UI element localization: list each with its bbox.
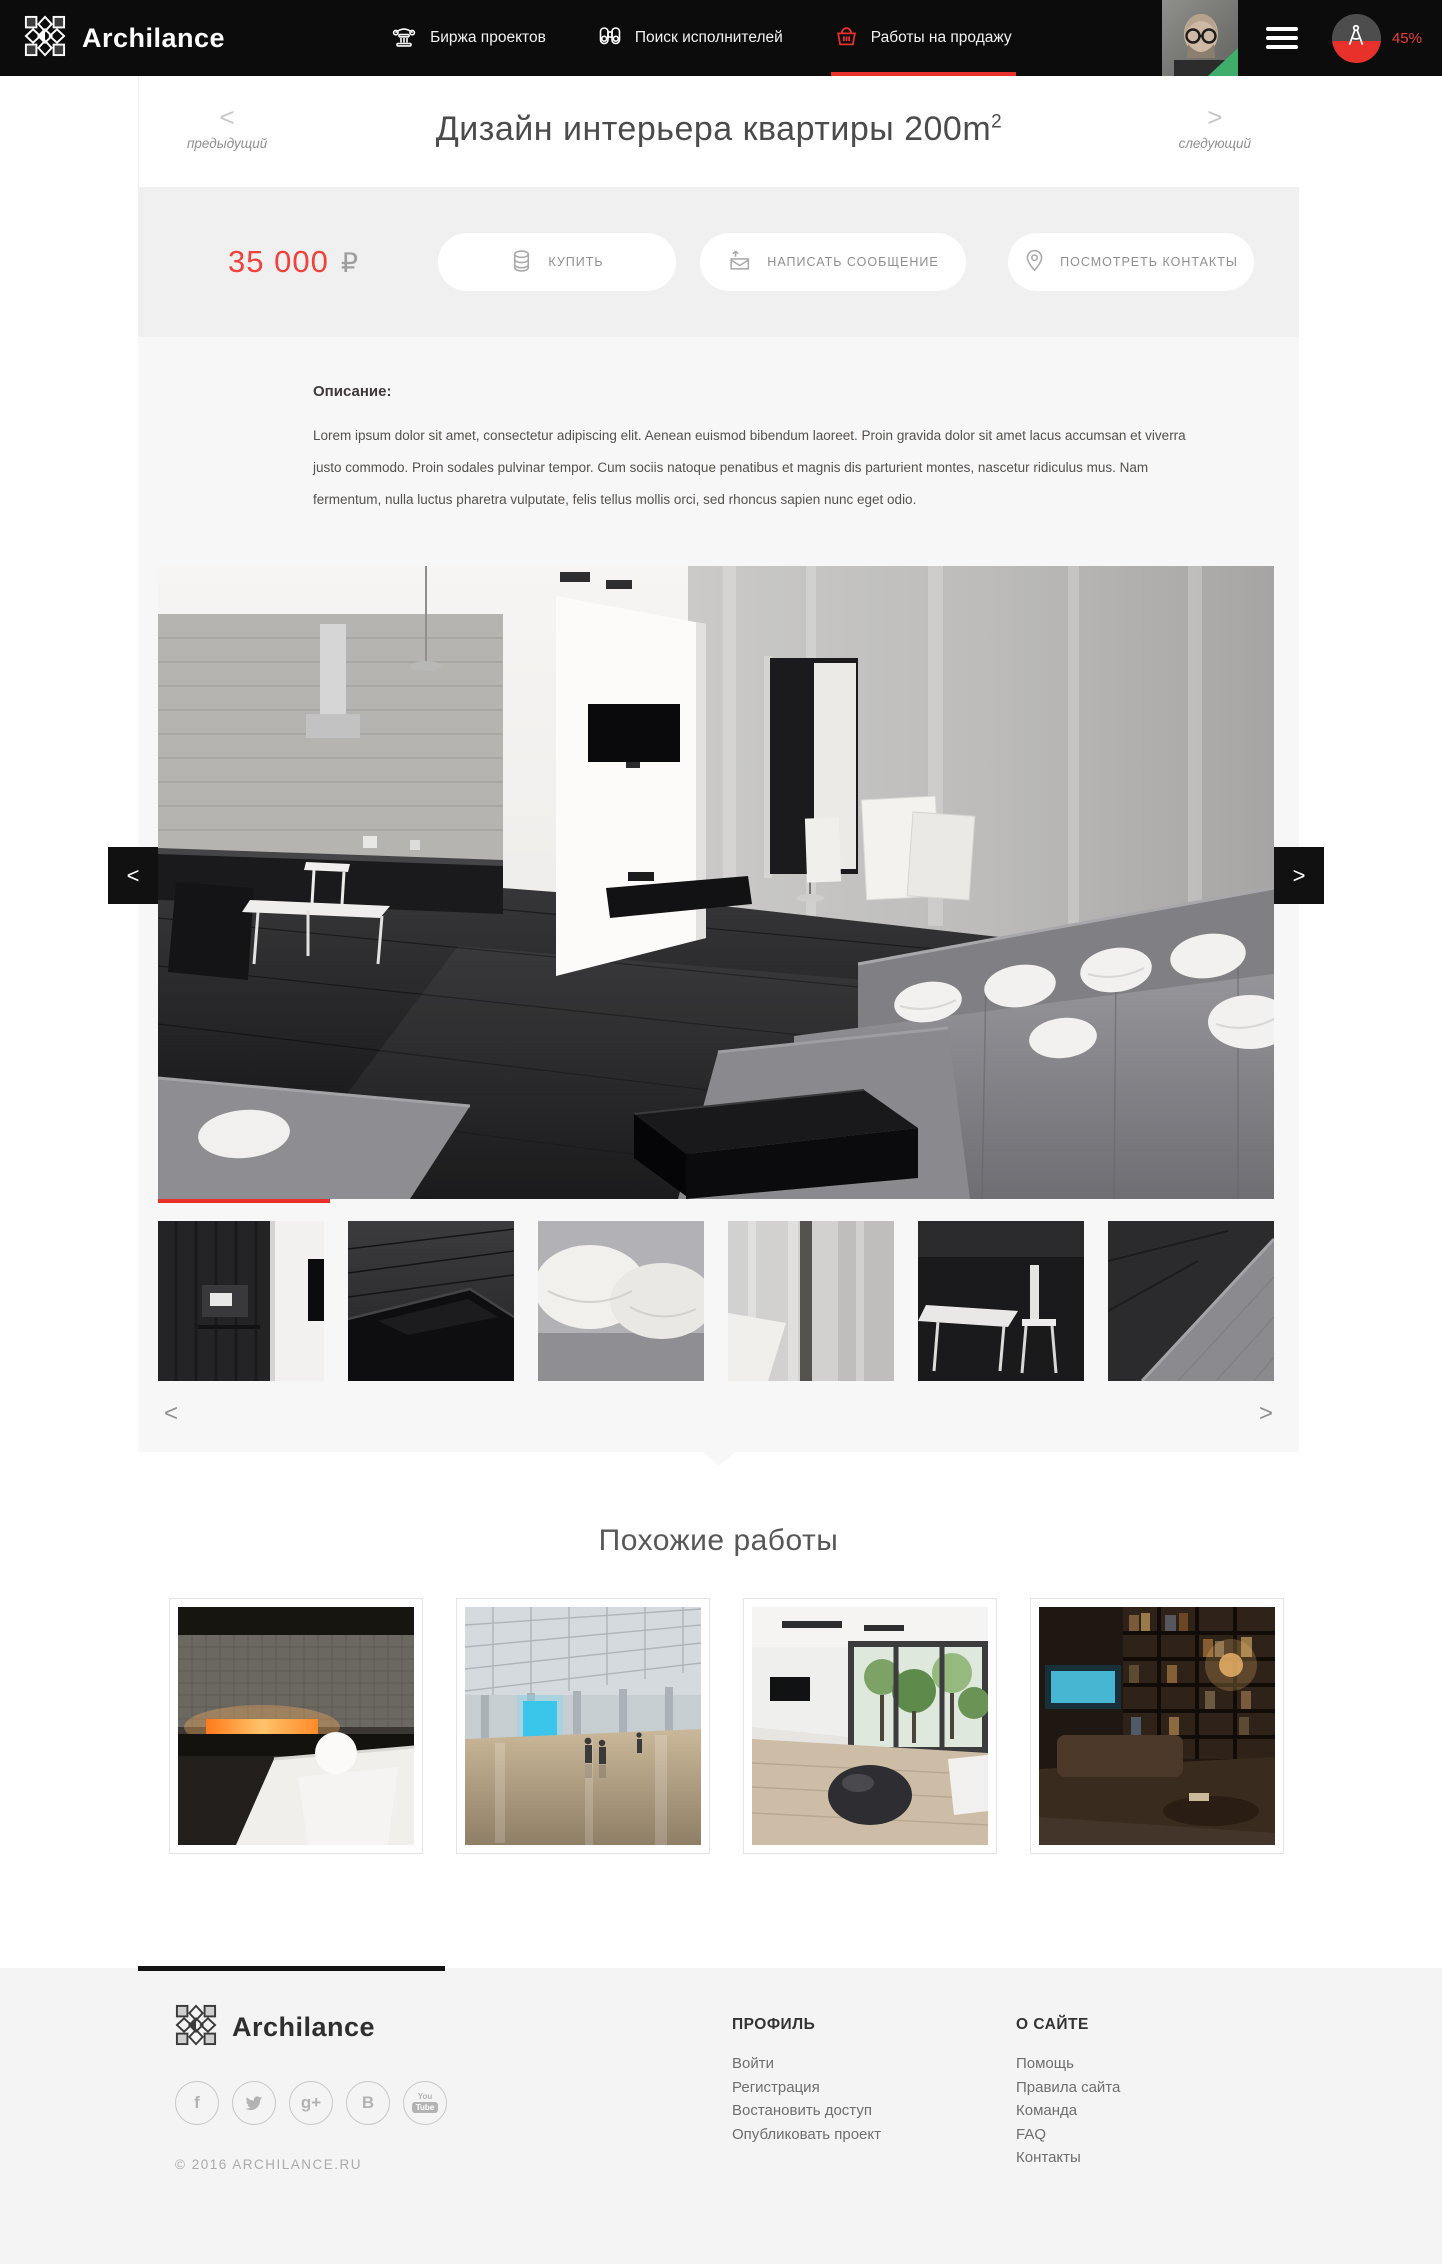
nav-item-works-for-sale[interactable]: Работы на продажу bbox=[809, 0, 1038, 76]
view-contacts-label: ПОСМОТРЕТЬ КОНТАКТЫ bbox=[1060, 255, 1238, 269]
next-work-label: следующий bbox=[1179, 136, 1251, 151]
footer-link-login[interactable]: Войти bbox=[732, 2052, 1016, 2076]
similar-work-card-fireplace[interactable] bbox=[169, 1598, 423, 1854]
similar-works-section: Похожие работы bbox=[138, 1452, 1299, 1968]
binoculars-icon bbox=[598, 24, 622, 52]
brand-name: Archilance bbox=[82, 23, 225, 54]
message-icon bbox=[727, 248, 752, 276]
prev-work-label: предыдущий bbox=[187, 136, 267, 151]
basket-icon bbox=[835, 25, 858, 51]
archilance-logo-icon bbox=[175, 2004, 217, 2051]
buy-button[interactable]: КУПИТЬ bbox=[438, 233, 676, 291]
twitter-icon[interactable] bbox=[232, 2081, 276, 2125]
footer-column-about: О САЙТЕ Помощь Правила сайта Команда FAQ… bbox=[1016, 1968, 1120, 2172]
main-photo bbox=[158, 566, 1274, 1199]
similar-work-card-living-room[interactable] bbox=[743, 1598, 997, 1854]
footer-link-faq[interactable]: FAQ bbox=[1016, 2123, 1120, 2147]
nav-item-label: Поиск исполнителей bbox=[635, 29, 783, 47]
description-text: Lorem ipsum dolor sit amet, consectetur … bbox=[313, 420, 1189, 516]
apartment-photo-illustration bbox=[158, 566, 1274, 1199]
similar-works-list bbox=[169, 1598, 1299, 1854]
work-title-bar: < предыдущий Дизайн интерьера квартиры 2… bbox=[138, 76, 1299, 187]
profile-progress-value: 45% bbox=[1392, 30, 1422, 47]
page-title: Дизайн интерьера квартиры 200m2 bbox=[436, 110, 1003, 149]
footer-link-help[interactable]: Помощь bbox=[1016, 2052, 1120, 2076]
pin-icon bbox=[1024, 248, 1045, 276]
footer-top-accent-bar bbox=[138, 1966, 445, 1971]
description-heading: Описание: bbox=[313, 383, 1299, 400]
currency-symbol: ₽ bbox=[341, 248, 358, 279]
top-navbar: Archilance Биржа проектов bbox=[0, 0, 1442, 76]
footer-link-register[interactable]: Регистрация bbox=[732, 2076, 1016, 2100]
youtube-icon[interactable]: You Tube bbox=[403, 2081, 447, 2125]
similar-work-card-library[interactable] bbox=[1030, 1598, 1284, 1854]
nav-item-label: Биржа проектов bbox=[430, 29, 546, 47]
nav-item-find-contractors[interactable]: Поиск исполнителей bbox=[572, 0, 809, 76]
vk-icon[interactable]: B bbox=[346, 2081, 390, 2125]
similar-works-heading: Похожие работы bbox=[138, 1524, 1299, 1558]
nav-item-label: Работы на продажу bbox=[871, 29, 1012, 47]
thumbnail-coffee-table[interactable] bbox=[348, 1221, 514, 1381]
price-block: 35 000 ₽ bbox=[228, 244, 358, 280]
chevron-right-icon: > bbox=[1179, 106, 1251, 128]
carousel-progress-indicator bbox=[158, 1199, 330, 1203]
thumbnail-pager: < > bbox=[164, 1401, 1273, 1427]
photo-next-button[interactable]: > bbox=[1274, 847, 1324, 904]
footer-link-contacts[interactable]: Контакты bbox=[1016, 2146, 1120, 2170]
navbar-right-cluster: 45% bbox=[1162, 0, 1442, 76]
footer-column-profile: ПРОФИЛЬ Войти Регистрация Востановить до… bbox=[732, 1968, 1016, 2172]
archilance-logo-icon bbox=[24, 15, 66, 62]
profile-progress-badge[interactable] bbox=[1332, 14, 1381, 63]
footer-link-site-rules[interactable]: Правила сайта bbox=[1016, 2076, 1120, 2100]
footer-link-team[interactable]: Команда bbox=[1016, 2099, 1120, 2123]
description-gallery-section: Описание: Lorem ipsum dolor sit amet, co… bbox=[138, 337, 1299, 1452]
price-value: 35 000 bbox=[228, 244, 329, 280]
footer-link-publish-project[interactable]: Опубликовать проект bbox=[732, 2123, 1016, 2147]
brand-logo[interactable]: Archilance bbox=[24, 15, 225, 62]
footer-brand-block: Archilance f g+ B You Tube © 2016 ARCHIL… bbox=[175, 1968, 732, 2172]
send-message-button[interactable]: НАПИСАТЬ СООБЩЕНИЕ bbox=[700, 233, 966, 291]
thumbs-prev-arrow[interactable]: < bbox=[164, 1401, 178, 1427]
main-nav: Биржа проектов Поиск исполнителей bbox=[365, 0, 1038, 76]
photo-prev-button[interactable]: < bbox=[108, 847, 158, 904]
thumbnail-pillows[interactable] bbox=[538, 1221, 704, 1381]
google-plus-icon[interactable]: g+ bbox=[289, 2081, 333, 2125]
compass-icon bbox=[1343, 23, 1369, 54]
nav-item-projects-exchange[interactable]: Биржа проектов bbox=[365, 0, 572, 76]
footer-column-heading: О САЙТЕ bbox=[1016, 2016, 1120, 2034]
thumbnail-dining-set[interactable] bbox=[918, 1221, 1084, 1381]
social-links: f g+ B You Tube bbox=[175, 2081, 732, 2125]
footer-column-heading: ПРОФИЛЬ bbox=[732, 2016, 1016, 2034]
prev-work-button[interactable]: < предыдущий bbox=[187, 106, 267, 151]
send-message-label: НАПИСАТЬ СООБЩЕНИЕ bbox=[767, 255, 938, 269]
footer-brand-logo[interactable]: Archilance bbox=[175, 2004, 732, 2051]
page-footer: Archilance f g+ B You Tube © 2016 ARCHIL… bbox=[0, 1968, 1442, 2264]
thumbnail-strip bbox=[158, 1221, 1299, 1381]
thumbnail-doorway-wall[interactable] bbox=[728, 1221, 894, 1381]
copyright-text: © 2016 ARCHILANCE.RU bbox=[175, 2157, 732, 2172]
footer-link-restore-access[interactable]: Востановить доступ bbox=[732, 2099, 1016, 2123]
user-avatar[interactable] bbox=[1162, 0, 1238, 76]
thumbnail-kitchen-panels[interactable] bbox=[158, 1221, 324, 1381]
column-icon bbox=[391, 24, 417, 53]
thumbs-next-arrow[interactable]: > bbox=[1259, 1401, 1273, 1427]
view-contacts-button[interactable]: ПОСМОТРЕТЬ КОНТАКТЫ bbox=[1008, 233, 1254, 291]
price-action-bar: 35 000 ₽ КУПИТЬ НАПИСАТЬ СООБЩЕНИЕ bbox=[138, 187, 1299, 337]
hamburger-menu-icon[interactable] bbox=[1266, 22, 1298, 54]
facebook-icon[interactable]: f bbox=[175, 2081, 219, 2125]
similar-work-card-mall[interactable] bbox=[456, 1598, 710, 1854]
next-work-button[interactable]: > следующий bbox=[1179, 106, 1251, 151]
thumbnail-sofa-corner[interactable] bbox=[1108, 1221, 1274, 1381]
footer-brand-name: Archilance bbox=[232, 2012, 375, 2043]
coins-icon bbox=[510, 249, 533, 276]
buy-button-label: КУПИТЬ bbox=[548, 255, 603, 269]
chevron-left-icon: < bbox=[187, 106, 267, 128]
